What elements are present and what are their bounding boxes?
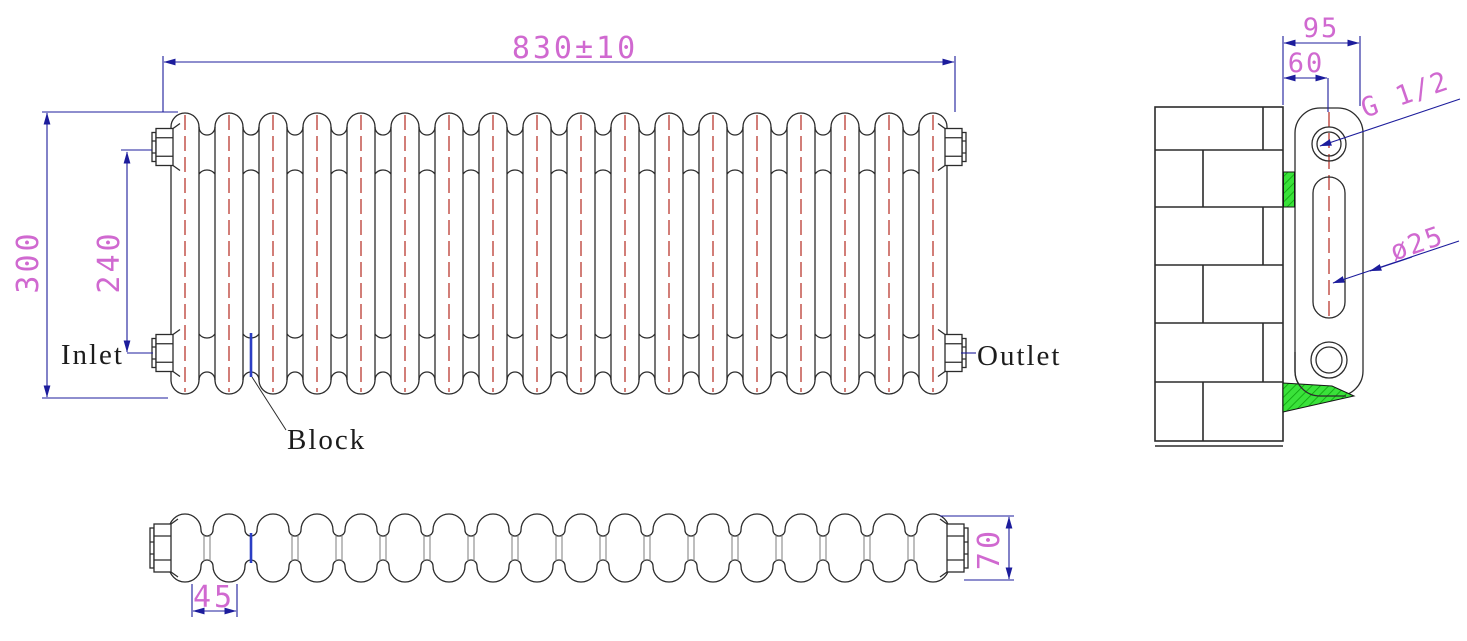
section-junction-lines <box>556 535 562 561</box>
front-extension-lines <box>42 56 955 398</box>
outlet-label: Outlet <box>977 340 1062 372</box>
wall-outline <box>1155 107 1283 441</box>
outlet-top-fitting <box>938 124 966 171</box>
section-junction-lines <box>864 535 870 561</box>
column-diameter-text: ø25 <box>1386 220 1448 267</box>
section-junction-lines <box>336 535 342 561</box>
section-junction-lines <box>424 535 430 561</box>
section-junction-lines <box>512 535 518 561</box>
section-junction-lines <box>688 535 694 561</box>
dim-width-text: 830±10 <box>512 31 638 66</box>
dim-60-text: 60 <box>1288 48 1325 79</box>
side-view: 95 60 G 1/2 ø25 <box>1155 13 1460 446</box>
top-view-left-fitting <box>150 519 178 577</box>
section-junction-lines <box>732 535 738 561</box>
thread-size-text: G 1/2 <box>1357 65 1453 124</box>
top-view-upper-outline <box>169 514 949 566</box>
top-extension-lines <box>192 516 1014 617</box>
inlet-label: Inlet <box>61 339 124 371</box>
top-view-right-fitting <box>940 519 968 577</box>
block-label: Block <box>287 424 366 456</box>
dim-95-text: 95 <box>1303 13 1340 44</box>
top-view-lower-outline <box>169 560 949 582</box>
section-junction-lines <box>776 535 782 561</box>
section-junction-lines <box>908 535 914 561</box>
back-column-arcs <box>199 170 919 338</box>
section-junction-lines <box>600 535 606 561</box>
block-leader-line <box>252 377 286 430</box>
section-junction-lines <box>204 535 210 561</box>
section-junction-lines <box>380 535 386 561</box>
section-junction-lines <box>820 535 826 561</box>
top-view: 45 70 <box>150 514 1014 617</box>
dim-height-text: 300 <box>11 230 46 293</box>
inlet-top-fitting <box>152 124 180 171</box>
section-junction-lines <box>468 535 474 561</box>
radiator-top-body <box>150 514 968 582</box>
inlet-fitting <box>152 330 180 377</box>
column-side-lines <box>171 127 947 380</box>
section-junction-lines <box>644 535 650 561</box>
front-view: 830±10 300 240 Inlet Outlet Block <box>11 31 1062 456</box>
upper-bracket-green <box>1284 172 1295 207</box>
section-junction-lines <box>292 535 298 561</box>
dim-70-text: 70 <box>972 528 1007 570</box>
dim-45-text: 45 <box>193 580 235 615</box>
radiator-technical-drawing: 830±10 300 240 Inlet Outlet Block 45 70 <box>0 0 1467 641</box>
radiator-front-body <box>152 113 966 394</box>
dim-240-text: 240 <box>92 230 127 293</box>
cad-canvas: 830±10 300 240 Inlet Outlet Block 45 70 <box>0 0 1467 641</box>
